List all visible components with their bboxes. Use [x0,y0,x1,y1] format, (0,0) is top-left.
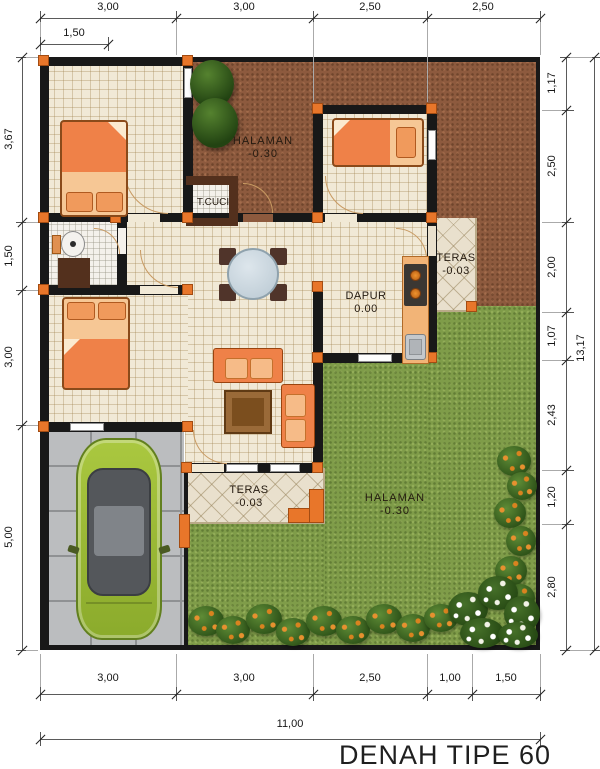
room-name: DAPUR [345,290,386,302]
car [76,438,162,640]
dim-extension-line [26,290,38,291]
sofa-single [281,384,315,448]
column-post [312,462,323,473]
flower-bush [494,498,526,528]
dim-extension-line [542,470,562,471]
dim-label: 1,17 [546,53,558,113]
room-name: HALAMAN [233,135,293,147]
window-living-south-2 [270,464,300,472]
dim-label: 11,00 [260,718,320,730]
dim-label: 2,00 [546,237,558,297]
dimension-line [40,44,108,45]
dim-extension-line [542,312,562,313]
wall-bedroom2-north [313,105,437,114]
dim-label: 2,50 [546,136,558,196]
dim-label: 13,17 [575,318,587,378]
dim-extension-line [26,425,38,426]
dim-extension-line [26,650,38,651]
dim-extension-line [26,222,38,223]
dim-label: 2,50 [340,672,400,684]
window-kitchen-south [358,354,392,362]
dim-label: 2,43 [546,385,558,445]
column-post [182,284,193,295]
door-gap-bedroom1 [128,214,160,222]
dim-label: 1,00 [425,672,475,684]
column-post [38,284,49,295]
dimension-line [594,57,595,650]
plot-edge-east [536,57,540,650]
stove [404,264,427,306]
car-roof [94,506,144,556]
flower-bush [507,472,537,500]
room-name: HALAMAN [365,492,425,504]
bed-bedroom3 [62,297,130,390]
door-gap-side-entry [243,214,273,222]
dim-extension-line [542,360,562,361]
room-name: TERAS [229,484,268,496]
column-post [312,352,323,363]
column-post [312,281,323,292]
column-post [466,301,477,312]
flower-bush [336,616,370,644]
car-hood-line [86,602,152,604]
yard-planter [179,514,190,548]
laundry-wall-south [186,218,238,226]
coffee-table [224,390,272,434]
dim-label: 1,20 [546,467,558,527]
dimension-line [22,57,23,650]
dim-extension-line [540,22,541,55]
dim-label: 3,00 [3,327,15,387]
column-post [182,212,193,223]
window-living-south-1 [226,464,258,472]
bed-bedroom2 [332,118,424,167]
column-post [38,212,49,223]
terrace-planter [309,489,324,523]
dim-label: 2,50 [340,1,400,13]
dim-label: 1,07 [546,306,558,366]
window-bedroom3-south [70,423,104,431]
wall-bedroom1-north [40,57,192,66]
bathroom-divider-wall [58,258,90,288]
dim-label: 3,00 [78,1,138,13]
dim-label: 3,00 [214,672,274,684]
column-post [182,55,193,66]
room-level: -0.30 [248,148,278,160]
dim-extension-line [570,650,592,651]
dim-extension-line [427,22,428,102]
window-bedroom2-east [428,130,436,160]
dim-label: 3,67 [3,109,15,169]
dimension-line [40,694,540,695]
label-halaman-front: HALAMAN -0.30 [345,492,445,518]
page-title: DENAH TIPE 60 [335,740,555,769]
dim-extension-line [26,57,38,58]
column-post [312,212,323,223]
toilet [52,230,86,258]
blanket-fold [108,122,126,140]
dimension-line [566,57,567,650]
flower-bush [506,526,536,556]
dimension-line [40,18,540,19]
dim-extension-line [542,222,562,223]
blanket-fold [64,339,80,355]
flower-bush [276,618,310,646]
wall-bedroom3-south [40,422,192,432]
label-halaman-back: HALAMAN -0.30 [203,135,323,161]
room-name: T.CUCI [197,197,229,208]
dim-label: 3,00 [214,1,274,13]
sofa-two-seat [213,348,283,383]
room-level: -0.30 [380,505,410,517]
bed-master [60,120,128,217]
room-level: 0.00 [354,303,377,315]
wall-bedroom2-west [313,105,323,222]
room-name: TERAS [436,252,475,264]
dim-label: 5,00 [3,507,15,567]
label-tcuci: T.CUCI [184,196,242,209]
plot-edge-north [192,57,540,62]
column-post [182,421,193,432]
floor-plan: HALAMAN -0.30 T.CUCI TERAS -0.03 DAPUR 0… [0,0,600,769]
white-flower-bush [498,622,538,648]
label-teras-back: TERAS -0.03 [425,252,487,278]
dining-table [227,248,279,300]
room-level: -0.03 [442,265,470,277]
label-teras-front: TERAS -0.03 [218,484,280,510]
column-post [181,462,192,473]
column-post [426,212,437,223]
wall-west [40,57,49,650]
blanket-fold [334,120,350,136]
dim-extension-line [176,22,177,55]
column-post [426,103,437,114]
dim-label: 1,50 [3,226,15,286]
label-dapur: DAPUR 0.00 [334,290,398,316]
room-level: -0.03 [235,497,263,509]
dim-extension-line [542,110,562,111]
dim-extension-line [313,22,314,102]
column-post [38,421,49,432]
dim-label: 1,50 [476,672,536,684]
dim-label: 2,50 [453,1,513,13]
door-gap-front [191,464,224,472]
dim-label: 1,50 [44,27,104,39]
dim-label: 3,00 [78,672,138,684]
dim-extension-line [570,57,592,58]
column-post [38,55,49,66]
dim-extension-line [542,524,562,525]
door-gap-bedroom2 [325,214,357,222]
kitchen-sink [405,334,426,360]
column-post [312,103,323,114]
dim-label: 2,80 [546,557,558,617]
flower-bush [216,616,250,644]
